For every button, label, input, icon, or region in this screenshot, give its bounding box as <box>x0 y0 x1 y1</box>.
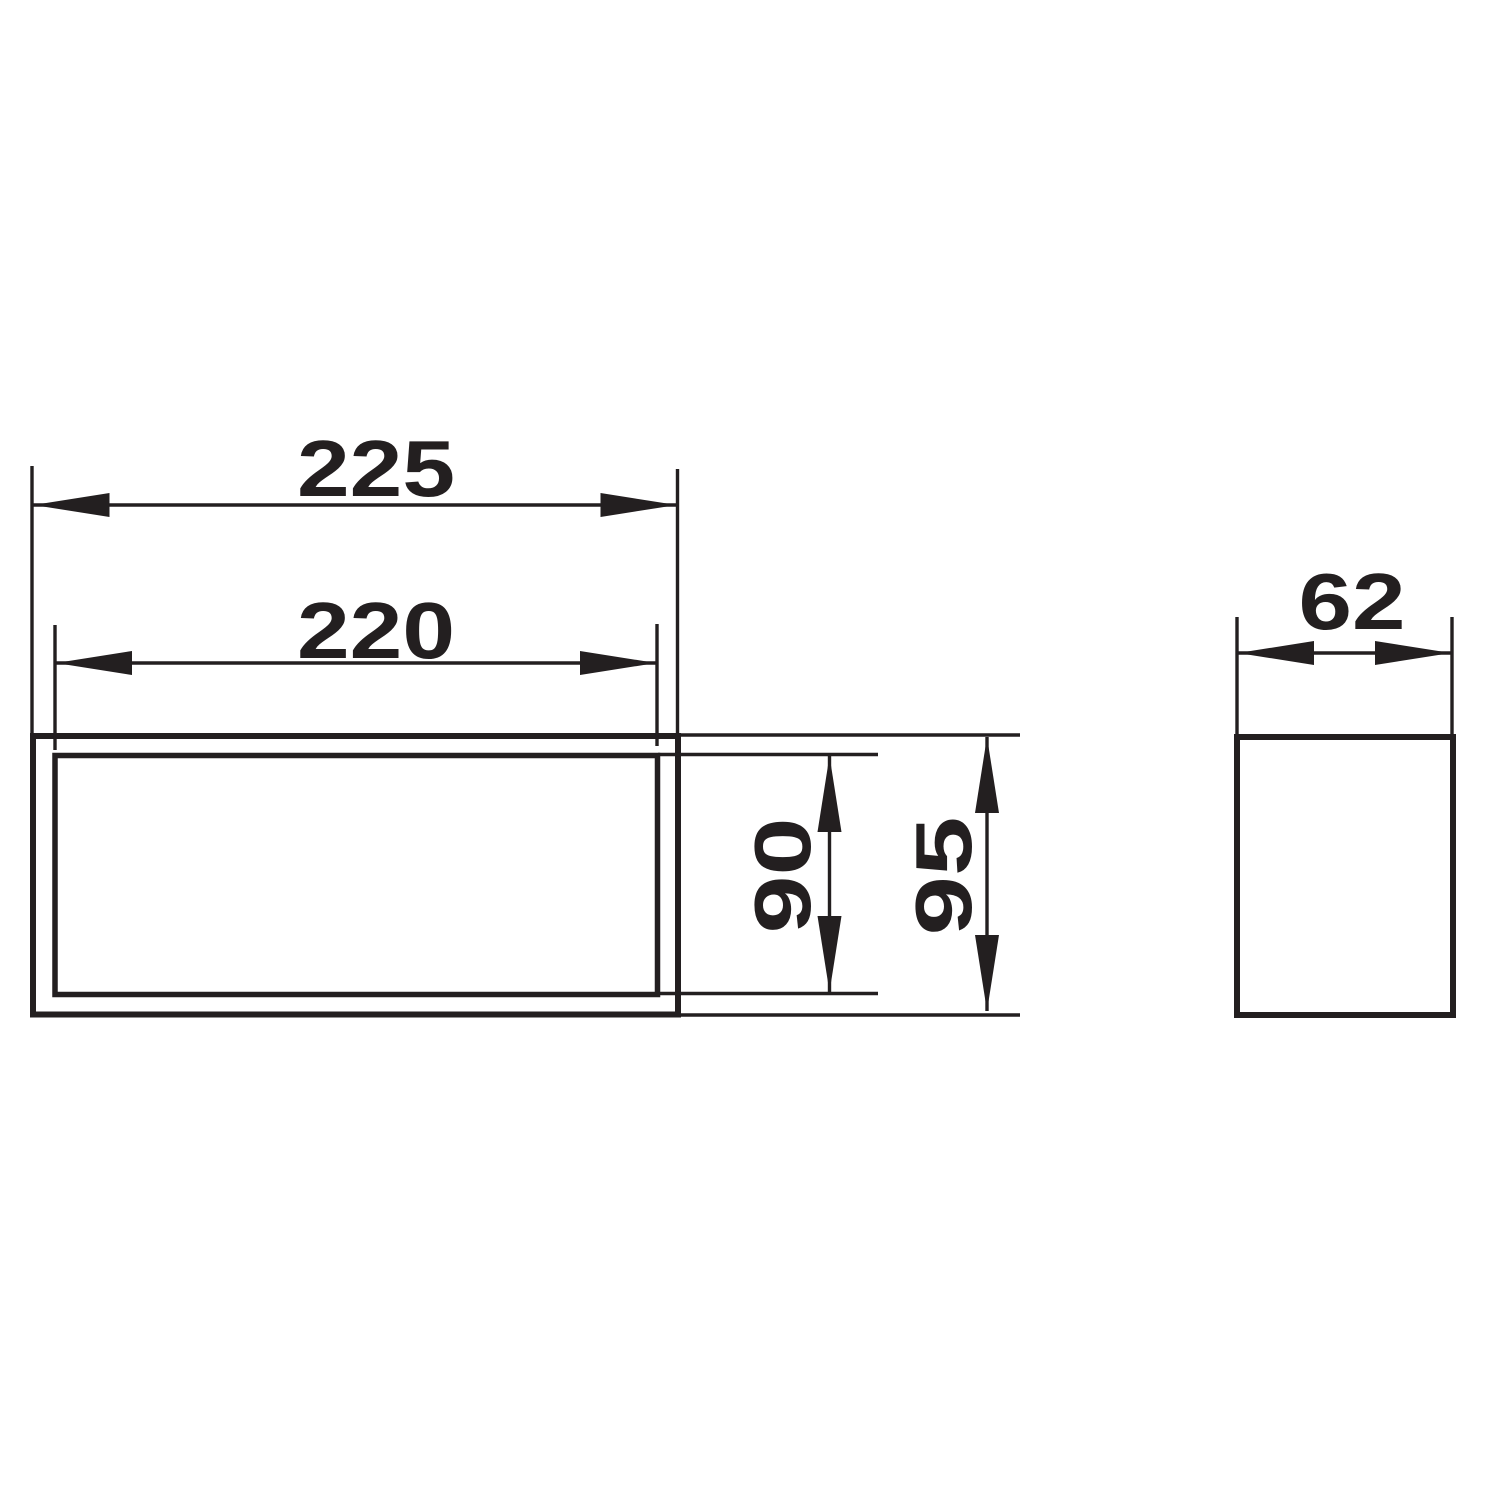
svg-text:220: 220 <box>297 586 455 675</box>
svg-text:225: 225 <box>297 424 455 513</box>
svg-text:95: 95 <box>899 817 988 936</box>
svg-text:62: 62 <box>1299 557 1406 646</box>
svg-text:90: 90 <box>738 818 827 934</box>
